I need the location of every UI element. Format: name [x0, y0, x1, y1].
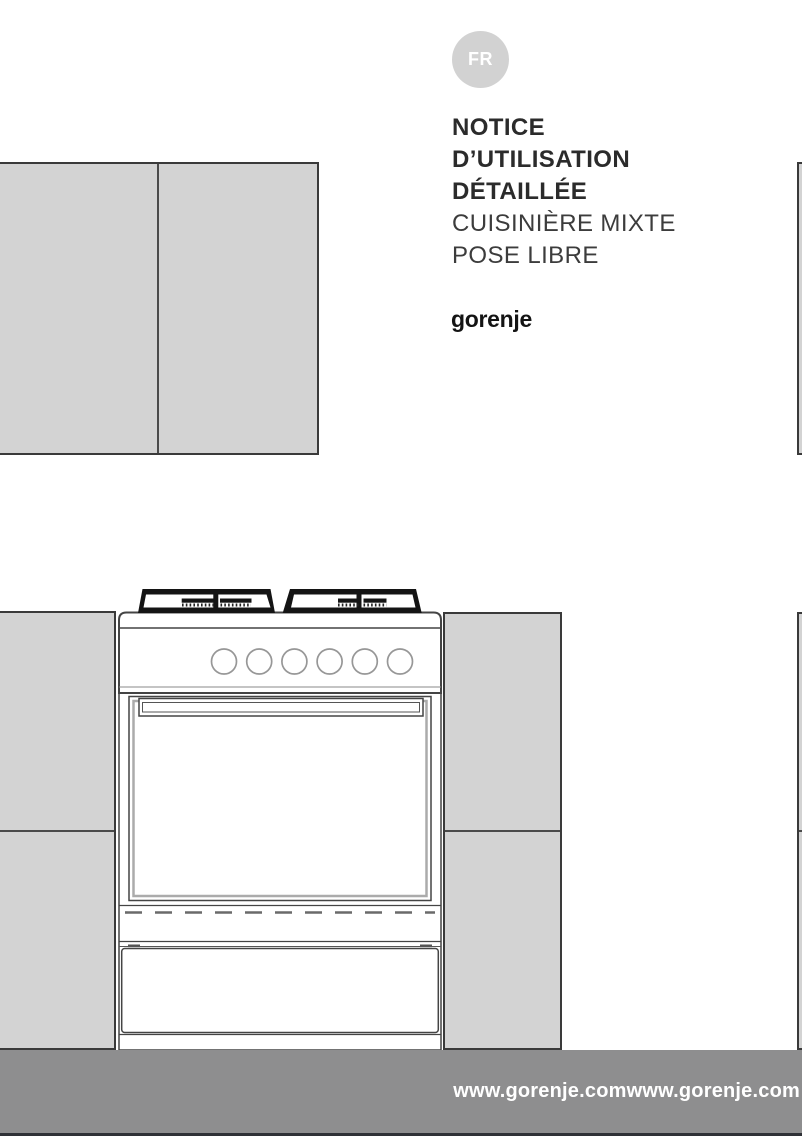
subtitle-line-1: CUISINIÈRE MIXTE	[452, 208, 676, 240]
cabinet-shelf-divider	[445, 830, 560, 832]
cabinet-shelf-divider	[0, 830, 114, 832]
cabinet-top-right-edge	[797, 162, 802, 455]
burner-cap	[220, 599, 252, 603]
language-badge: FR	[452, 31, 509, 88]
drawer-hinge-mark	[128, 945, 140, 948]
knob	[212, 649, 237, 674]
knob	[388, 649, 413, 674]
hob-pan-support-left	[138, 589, 275, 613]
burner-cap	[182, 599, 215, 603]
knob	[352, 649, 377, 674]
drawer-hinge-mark	[420, 945, 432, 948]
brand-logo: gorenje	[451, 306, 532, 333]
subtitle-line-2: POSE LIBRE	[452, 240, 676, 272]
burner-cap	[364, 599, 387, 603]
oven-door-handle	[139, 699, 423, 717]
manual-cover-page: FR NOTICE D’UTILISATION DÉTAILLÉE CUISIN…	[0, 0, 802, 1136]
title-line-1: NOTICE	[452, 112, 676, 144]
cabinet-bottom-left	[0, 611, 116, 1050]
cabinet-bottom-right	[443, 612, 562, 1050]
cabinet-door-divider	[157, 164, 159, 453]
language-badge-label: FR	[468, 49, 493, 70]
title-line-2: D’UTILISATION	[452, 144, 676, 176]
knob	[282, 649, 307, 674]
cooker-illustration	[113, 584, 447, 1051]
burner-cap	[338, 599, 360, 603]
title-line-3: DÉTAILLÉE	[452, 176, 676, 208]
footer-band: www.gorenje.comwww.gorenje.com	[0, 1050, 802, 1136]
title-block: NOTICE D’UTILISATION DÉTAILLÉE CUISINIÈR…	[452, 112, 676, 272]
cabinet-top-left	[0, 162, 319, 455]
storage-drawer	[122, 949, 439, 1033]
footer-url[interactable]: www.gorenje.comwww.gorenje.com	[453, 1080, 800, 1103]
knob	[317, 649, 342, 674]
oven-door	[129, 697, 431, 901]
knob	[247, 649, 272, 674]
hob-pan-support-right	[283, 589, 422, 613]
cabinet-bottom-right-edge	[797, 612, 802, 1050]
